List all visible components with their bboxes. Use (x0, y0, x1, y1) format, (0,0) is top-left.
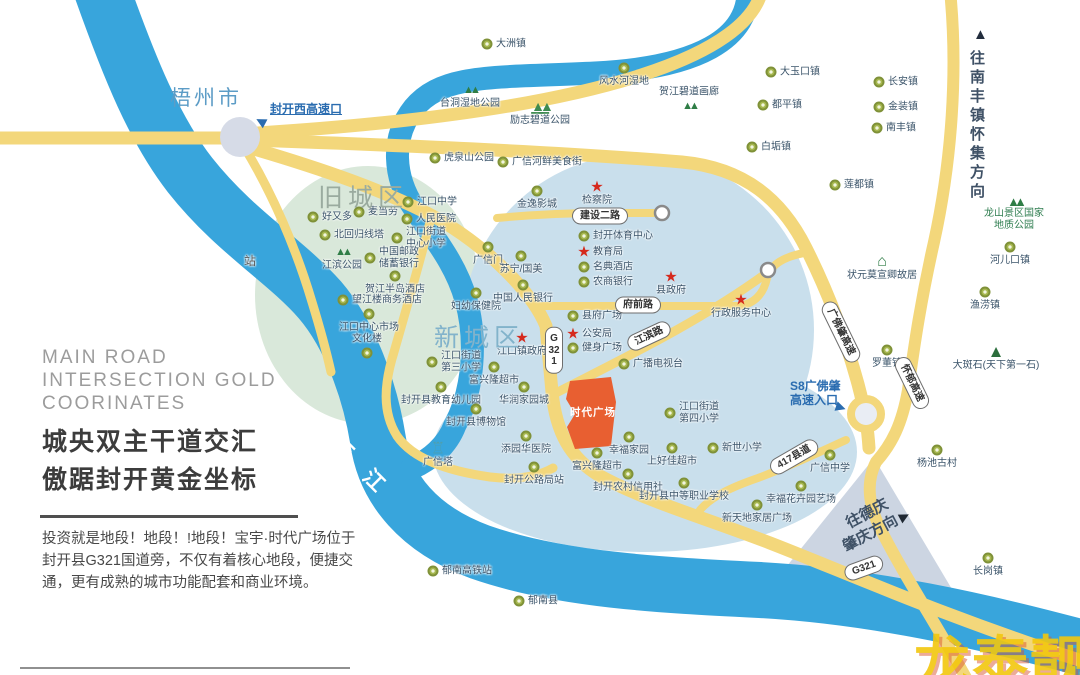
map-label: 北回归线塔 (334, 229, 384, 241)
map-label: 白垢镇 (761, 141, 791, 153)
map-label: 新天地家居广场 (722, 513, 792, 525)
map-label: 广信河鲜美食街 (512, 156, 582, 168)
map-label: 金装镇 (888, 101, 918, 113)
place-dot-icon (390, 271, 401, 282)
place-dot-icon (308, 212, 319, 223)
north-direction-arrow-icon: ▲ (973, 26, 988, 43)
map-label: 江口街道第四小学 (679, 402, 719, 425)
place-dot-icon (623, 469, 634, 480)
park-icon: ▲▲ (531, 100, 549, 114)
panel-title-cn-line2: 傲踞封开黄金坐标 (42, 460, 258, 496)
place-dot-icon (830, 180, 841, 191)
panel-body-text: 投资就是地段！地段！!地段！宝宇·时代广场位于封开县G321国道旁，不仅有着核心… (42, 528, 358, 594)
place-dot-icon (579, 262, 590, 273)
place-dot-icon (427, 357, 438, 368)
map-label: 广播电视台 (633, 358, 683, 370)
mountain-icon: ▲ (988, 345, 1005, 359)
map-label: 大斑石(天下第一石) (953, 360, 1040, 372)
map-label: 大洲镇 (496, 38, 526, 50)
place-dot-icon (364, 309, 375, 320)
map-label: 望江楼商务酒店 (352, 294, 422, 306)
place-dot-icon (338, 295, 349, 306)
map-label: 中国人民银行 (493, 293, 553, 305)
map-label: 江口中学 (417, 196, 457, 208)
map-page: 大洲镇风水河湿地大玉口镇长安镇都平镇金装镇南丰镇白垢镇莲都镇河儿口镇渔涝镇罗董镇… (0, 0, 1080, 675)
place-dot-icon (825, 450, 836, 461)
map-label: 江滨公园 (322, 260, 362, 272)
map-label: 检察院 (582, 195, 612, 207)
map-label: 行政服务中心 (711, 308, 771, 320)
map-label: 县政府 (656, 285, 686, 297)
place-dot-icon (516, 251, 527, 262)
map-label: 封开县博物馆 (446, 417, 506, 429)
place-dot-icon (518, 280, 529, 291)
place-dot-icon (483, 242, 494, 253)
map-label: 人民医院 (416, 213, 456, 225)
map-label: 励志碧道公园 (510, 115, 570, 127)
place-dot-icon (489, 362, 500, 373)
west-highway-entry-label: 封开西高速口 (270, 103, 342, 117)
map-label: 台洞湿地公园 (440, 98, 500, 110)
map-label: 幸福花卉园艺场 (766, 494, 836, 506)
star-icon: ★ (664, 271, 677, 284)
place-dot-icon (980, 287, 991, 298)
map-label: 封开公路局站 (504, 475, 564, 487)
place-dot-icon (747, 142, 758, 153)
place-dot-icon (932, 445, 943, 456)
new-town-label: 新城区 (434, 318, 524, 354)
map-label: 封开县中等职业学校 (639, 491, 729, 503)
trees-icon: ▲▲ (682, 101, 696, 111)
map-label: 长岗镇 (973, 566, 1003, 578)
north-direction-note: 往南丰镇怀集方向 (966, 50, 987, 202)
place-dot-icon (983, 553, 994, 564)
place-dot-icon (436, 382, 447, 393)
panel-title-en: MAIN ROAD INTERSECTION GOLD COORINATES (42, 346, 277, 415)
place-dot-icon (568, 311, 579, 322)
trees-icon: ▲▲ (463, 85, 477, 95)
road-pill: 建设二路 (572, 208, 628, 225)
map-label: 新世小学 (722, 442, 762, 454)
map-label: 中国邮政储蓄银行 (379, 247, 419, 270)
map-label: 文化楼 (352, 334, 382, 346)
junction-dot (655, 206, 669, 220)
map-label: 郁南县 (528, 595, 558, 607)
place-dot-icon (874, 77, 885, 88)
map-label: 贺江碧道画廊 (659, 87, 719, 99)
map-label: 长安镇 (888, 76, 918, 88)
map-label: 郁南高铁站 (442, 565, 492, 577)
star-icon: ★ (734, 294, 747, 307)
place-dot-icon (619, 63, 630, 74)
place-dot-icon (1005, 242, 1016, 253)
times-plaza-label: 时代广场 (570, 405, 616, 420)
place-dot-icon (362, 348, 373, 359)
place-dot-icon (796, 481, 807, 492)
place-dot-icon (498, 157, 509, 168)
place-dot-icon (428, 566, 439, 577)
map-label: 渔涝镇 (970, 300, 1000, 312)
trees-icon: ▲▲ (335, 247, 349, 257)
place-dot-icon (579, 231, 590, 242)
place-dot-icon (365, 253, 376, 264)
map-label: 苏宁/国美 (500, 264, 543, 276)
place-dot-icon (619, 359, 630, 370)
map-label: 虎泉山公园 (444, 152, 494, 164)
mountains-icon: ▲▲ (984, 196, 1044, 208)
map-label: 县府广场 (582, 310, 622, 322)
place-dot-icon (758, 100, 769, 111)
s8-highway-entry-label: S8广佛肇 高速入口 (790, 380, 841, 408)
panel-title-cn-line1: 城央双主干道交汇 (42, 422, 258, 458)
highway-interchange (851, 399, 881, 429)
map-label: 站 (244, 255, 256, 269)
place-dot-icon (679, 478, 690, 489)
map-label: 风水河湿地 (599, 76, 649, 88)
junction-dot (761, 263, 775, 277)
map-label: 华润家园城 (499, 395, 549, 407)
geopark-label: ▲▲ 龙山景区国家 地质公园 (984, 196, 1044, 232)
map-label: 封开县教育幼儿园 (401, 395, 481, 407)
map-label: 添园华医院 (501, 444, 551, 456)
road-pill: 府前路 (615, 297, 661, 314)
place-dot-icon (514, 596, 525, 607)
place-dot-icon (402, 214, 413, 225)
place-dot-icon (532, 186, 543, 197)
place-dot-icon (708, 443, 719, 454)
place-dot-icon (320, 230, 331, 241)
map-label: 河儿口镇 (990, 255, 1030, 267)
place-dot-icon (568, 343, 579, 354)
place-dot-icon (519, 382, 530, 393)
map-label: 教育局 (593, 246, 623, 258)
map-label: 农商银行 (593, 276, 633, 288)
s8-entry-line2: 高速入口 (790, 394, 841, 408)
map-label: 妇幼保健院 (451, 301, 501, 313)
map-label: 大玉口镇 (780, 66, 820, 78)
place-dot-icon (521, 431, 532, 442)
map-label: 广信中学 (810, 463, 850, 475)
place-dot-icon (665, 408, 676, 419)
place-dot-icon (766, 67, 777, 78)
map-label: 公安局 (582, 328, 612, 340)
map-label: 状元莫宣卿故居 (847, 270, 917, 282)
place-dot-icon (579, 277, 590, 288)
map-label: 南丰镇 (886, 122, 916, 134)
city-label-wuzhou: 梧州市 (170, 82, 242, 112)
map-label: 健身广场 (582, 342, 622, 354)
place-dot-icon (592, 448, 603, 459)
map-label: 富兴隆超市 (572, 461, 622, 473)
map-label: 名典酒店 (593, 261, 633, 273)
s8-entry-line1: S8广佛肇 (790, 380, 841, 394)
map-label: 封开体育中心 (593, 230, 653, 242)
place-dot-icon (874, 102, 885, 113)
map-label: 幸福家园 (609, 445, 649, 457)
map-label: 广信门 (473, 255, 503, 267)
place-dot-icon (430, 153, 441, 164)
pagoda-icon: ♖ (431, 442, 445, 457)
star-icon: ★ (566, 328, 579, 341)
map-label: 金逸影城 (517, 199, 557, 211)
star-icon: ★ (577, 246, 590, 259)
place-dot-icon (471, 404, 482, 415)
building-icon: ⌂ (877, 255, 887, 269)
map-label: 上好佳超市 (647, 456, 697, 468)
panel-divider (40, 515, 298, 518)
place-dot-icon (529, 462, 540, 473)
map-label: 江口中心市场 (339, 322, 399, 334)
place-dot-icon (471, 288, 482, 299)
road-pill: G321 (545, 327, 563, 374)
map-label: 杨池古村 (917, 458, 957, 470)
map-label: 莲都镇 (844, 179, 874, 191)
watermark: 龙泰靓房 (914, 618, 1080, 675)
place-dot-icon (667, 443, 678, 454)
map-label: 广信塔 (423, 457, 453, 469)
place-dot-icon (624, 432, 635, 443)
place-dot-icon (482, 39, 493, 50)
place-dot-icon (872, 123, 883, 134)
place-dot-icon (752, 500, 763, 511)
panel-bottom-line (20, 667, 350, 669)
map-label: 富兴隆超市 (469, 375, 519, 387)
map-label: 都平镇 (772, 99, 802, 111)
place-dot-icon (882, 345, 893, 356)
old-town-label: 旧城区 (318, 178, 408, 214)
star-icon: ★ (590, 181, 603, 194)
place-dot-icon (392, 233, 403, 244)
